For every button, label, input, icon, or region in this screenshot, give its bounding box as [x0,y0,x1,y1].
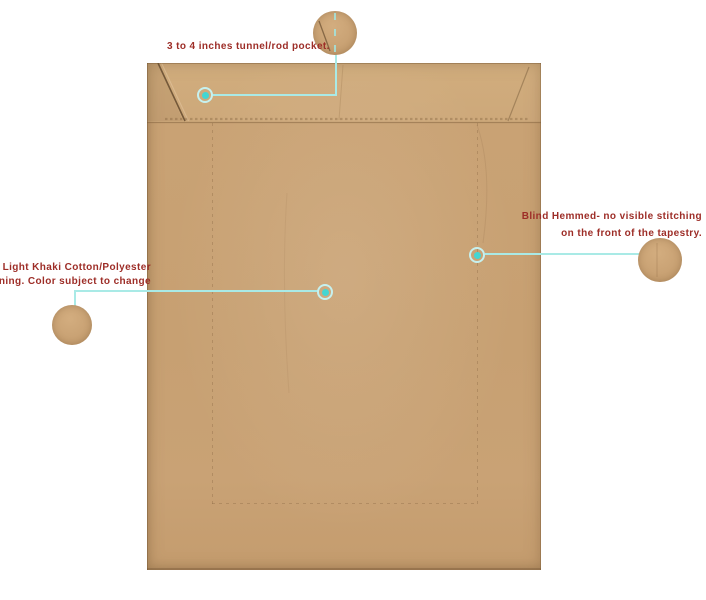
hotspot-marker-lining [317,284,333,300]
label-lining-line2: lining. Color subject to change [0,275,151,289]
marker-dot-icon [474,252,481,259]
label-lining: Light Khaki Cotton/Polyester lining. Col… [0,261,151,288]
hotspot-marker-rod-pocket [197,87,213,103]
hotspot-marker-blind-hem [469,247,485,263]
label-rod-pocket: 3 to 4 inches tunnel/rod pocket. [167,41,330,52]
leader-line-blind-hem-horizontal [485,253,639,255]
label-blind-hem-line2: on the front of the tapestry. [522,225,702,242]
detail-circle-blind-hem [638,238,682,282]
leader-line-rod-pocket-horizontal [211,94,336,96]
fabric-seam-lines [147,63,541,570]
leader-line-rod-pocket-vertical [335,53,337,96]
tapestry-back-fabric [147,63,541,570]
label-lining-line1: Light Khaki Cotton/Polyester [0,261,151,275]
label-blind-hem-line1: Blind Hemmed- no visible stitching [522,208,702,225]
leader-line-lining-horizontal [75,290,318,292]
detail-circle-lining [52,305,92,345]
marker-dot-icon [202,92,209,99]
leader-line-lining-vertical [74,290,76,306]
marker-dot-icon [322,289,329,296]
product-annotation-image: 3 to 4 inches tunnel/rod pocket. Light K… [0,0,706,600]
blind-hem-swatch-detail [638,238,682,282]
label-blind-hem: Blind Hemmed- no visible stitching on th… [522,208,702,242]
